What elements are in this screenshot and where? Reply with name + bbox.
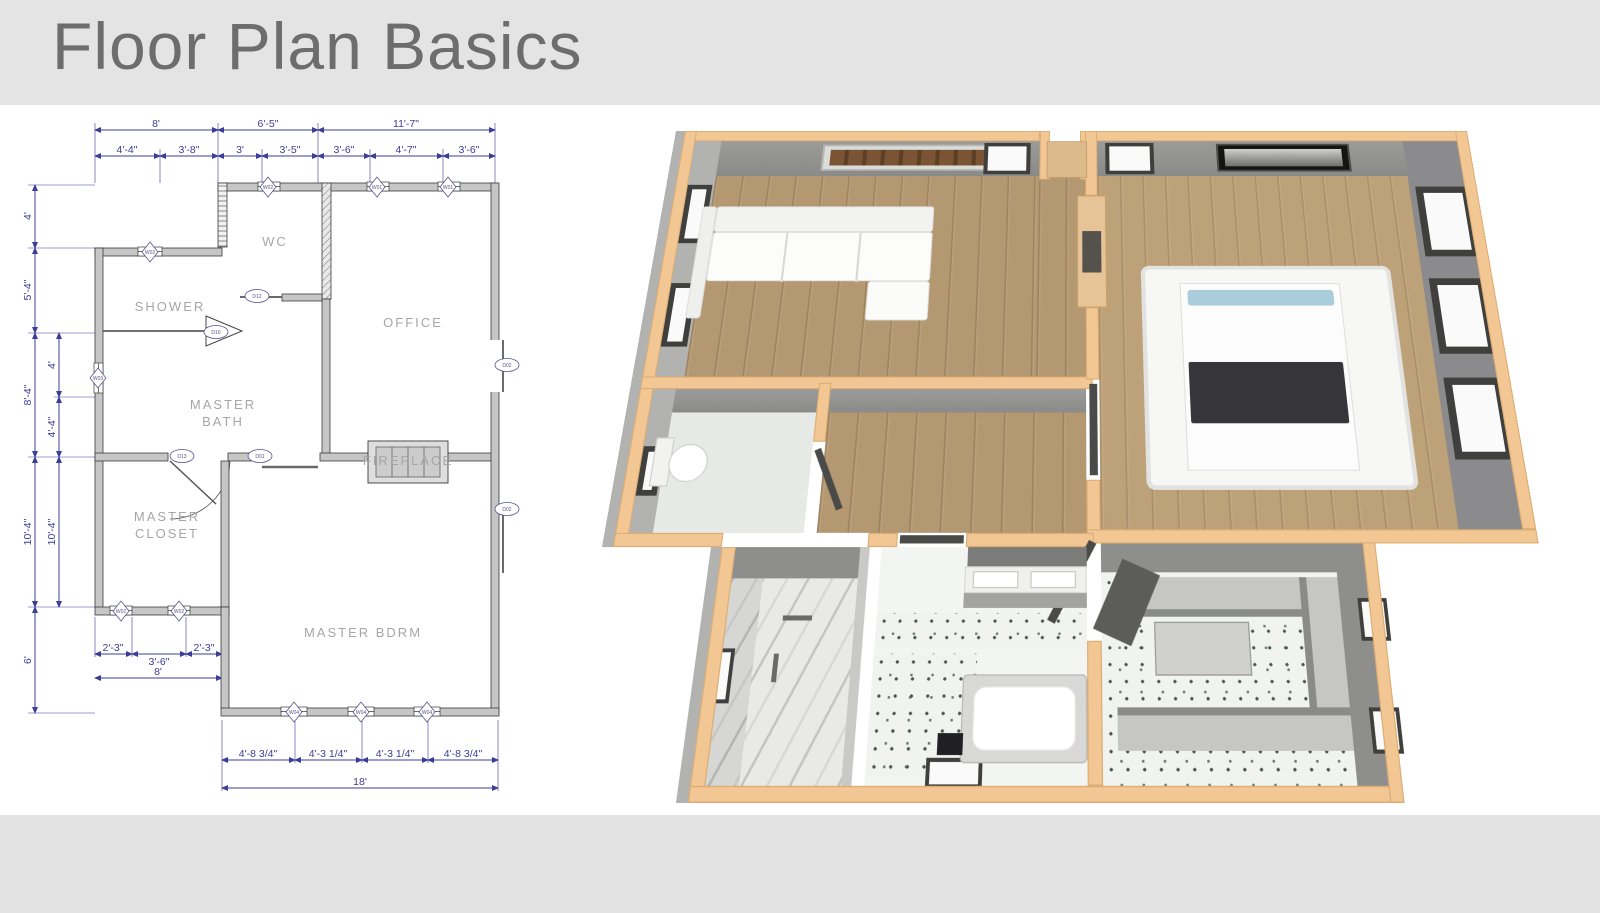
door-marker-label: D02 <box>502 507 511 513</box>
fireplace-firebox <box>1082 231 1101 272</box>
room-label-shower: SHOWER <box>135 299 206 314</box>
floor-plan-2d-drawing: 8' 6'-5" 11'-7" 4'-4" 3'-8" 3' 3'-5" 3'-… <box>10 105 530 815</box>
bath-door-slab <box>900 535 964 543</box>
room-label-master-closet: CLOSET <box>135 526 199 541</box>
closet-shelf-south <box>1117 707 1354 750</box>
vanity-sink <box>973 571 1019 588</box>
wall-cap <box>867 533 898 547</box>
dim-label: 4'-4" <box>46 416 58 437</box>
dim-label: 10'-4" <box>46 518 58 545</box>
dim-label: 4'-3 1/4" <box>376 748 415 760</box>
door-marker-label: D02 <box>502 363 511 369</box>
bedroom-hall-door-slab <box>1089 384 1098 475</box>
wall-cap <box>688 786 1405 803</box>
dim-label: 4'-8 3/4" <box>444 748 483 760</box>
dim-label: 6' <box>22 656 34 664</box>
dim-label: 3'-5" <box>280 144 301 156</box>
dim-label: 4'-3 1/4" <box>309 748 348 760</box>
dim-label: 3'-6" <box>459 144 480 156</box>
office-artwork <box>821 145 995 171</box>
bedroom-artwork <box>1216 144 1352 172</box>
window-marker-label: W02 <box>174 609 185 615</box>
closet-island <box>1154 622 1252 676</box>
wall-cap <box>640 377 1093 390</box>
sofa-seat <box>706 232 933 281</box>
bathtub <box>971 686 1076 751</box>
title-banner: Floor Plan Basics <box>0 0 1600 105</box>
render-3d <box>540 105 1600 805</box>
bedroom-door <box>1105 143 1154 174</box>
wall-cap <box>683 131 1040 141</box>
bed-pillows <box>1187 290 1334 306</box>
plan-walls <box>94 182 503 716</box>
door-marker-label: D13 <box>177 454 186 460</box>
vanity-sink <box>1030 571 1076 588</box>
window-marker-label: W04 <box>422 710 433 716</box>
dim-label: 4'-4" <box>117 144 138 156</box>
window-marker-label: W03 <box>93 376 104 382</box>
render-3d-plan <box>568 131 1584 803</box>
wall-cap <box>1086 480 1100 531</box>
dim-label: 2'-3" <box>194 642 215 654</box>
dim-label: 8' <box>152 118 160 130</box>
bathtub-surround <box>959 674 1087 763</box>
dim-label: 3' <box>236 144 244 156</box>
dim-label: 18' <box>353 776 367 788</box>
fireplace-3d <box>1077 196 1107 308</box>
wall-cap <box>613 533 724 547</box>
dim-label: 4' <box>46 361 58 369</box>
dim-label: 2'-3" <box>103 642 124 654</box>
bed <box>1180 283 1361 471</box>
window-marker-label: W01 <box>372 185 383 191</box>
office-door <box>983 143 1031 174</box>
dim-label: 5'-4" <box>22 279 34 300</box>
sofa-back <box>713 206 934 232</box>
wall-cap <box>966 533 1094 547</box>
bath-accessory <box>937 733 963 755</box>
vanity-cabinet <box>963 593 1087 608</box>
room-label-wc: WC <box>262 234 288 249</box>
room-label-master-bath: BATH <box>202 414 244 429</box>
wall-cap <box>1087 529 1539 543</box>
door-marker-label: D01 <box>255 454 264 460</box>
page-title: Floor Plan Basics <box>0 0 1600 84</box>
shower-north-wall-face <box>732 547 860 578</box>
window-marker-label: W04 <box>289 710 300 716</box>
window-marker-label: W02 <box>145 250 156 256</box>
wall-cap <box>1090 131 1469 141</box>
dim-label: 8' <box>154 666 162 678</box>
door-marker-label: D10 <box>211 330 220 336</box>
room-label-fireplace: FIREPLACE <box>363 453 453 468</box>
slide: Floor Plan Basics <box>0 0 1600 913</box>
footer-band <box>0 815 1600 913</box>
dim-label: 6'-5" <box>258 118 279 130</box>
hall-north-wall-face <box>828 389 1086 412</box>
vanity-mirror <box>967 547 1086 566</box>
dim-label: 10'-4" <box>22 518 34 545</box>
vanity-counter <box>964 566 1087 593</box>
room-label-master-closet: MASTER <box>134 509 200 524</box>
dim-label: 4'-7" <box>396 144 417 156</box>
floor-plan-2d: 8' 6'-5" 11'-7" 4'-4" 3'-8" 3' 3'-5" 3'-… <box>10 105 530 815</box>
window-marker-label: W01 <box>443 185 454 191</box>
wall-cap <box>1086 308 1100 380</box>
dim-label: 3'-6" <box>334 144 355 156</box>
sofa-chaise <box>865 281 930 320</box>
sofa-seam <box>780 233 788 282</box>
dim-label: 4' <box>22 212 34 220</box>
room-label-office: OFFICE <box>383 315 443 330</box>
dim-label: 4'-8 3/4" <box>239 748 278 760</box>
wall-cap <box>1087 641 1103 786</box>
door-marker-label: D12 <box>252 294 261 300</box>
entry-builtin <box>1046 141 1087 178</box>
dim-label: 11'-7" <box>393 118 419 130</box>
sofa-seam <box>855 233 862 282</box>
shower-head-arm <box>783 615 813 620</box>
window-marker-label: W02 <box>116 609 127 615</box>
office-artwork-image <box>829 150 984 166</box>
bedroom-artwork-image <box>1224 149 1343 166</box>
room-label-master-bath: MASTER <box>190 397 256 412</box>
dim-label: 3'-8" <box>179 144 200 156</box>
room-label-master-bdrm: MASTER BDRM <box>304 625 422 640</box>
bed-throw-blanket <box>1188 362 1349 423</box>
window-marker-label: W04 <box>356 710 367 716</box>
window-marker-label: W02 <box>263 185 274 191</box>
dim-label: 8'-4" <box>22 384 34 405</box>
